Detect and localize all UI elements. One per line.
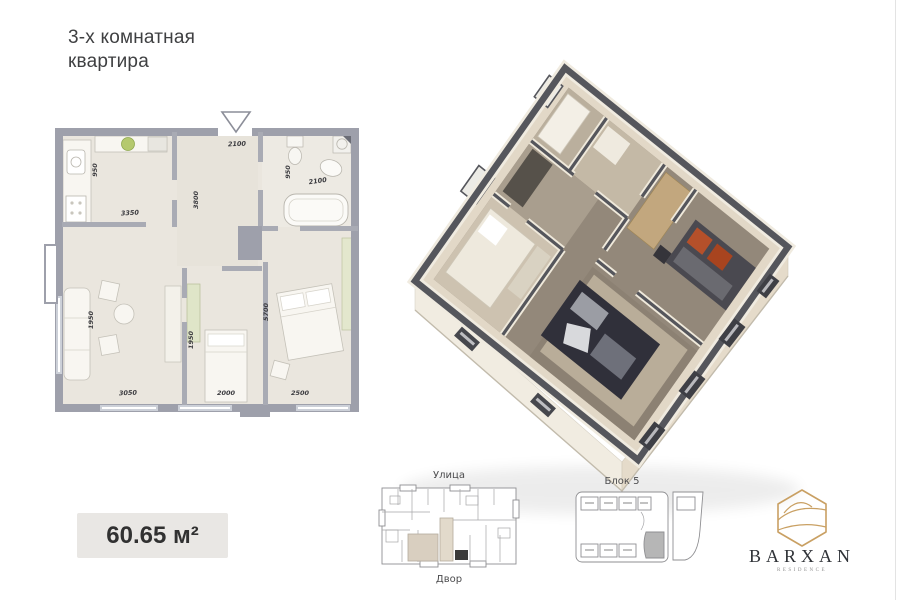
plan3d-body [404, 59, 788, 460]
plans-canvas: 2100 950 3350 3800 950 2100 1950 1950 57… [0, 0, 900, 600]
dim-bedroom2-l: 2000 [217, 389, 236, 397]
wardrobe [342, 238, 352, 330]
shaft-block [45, 245, 57, 303]
dim-living-w: 1950 [87, 310, 95, 329]
brochure-page: 3-х комнатная квартира [0, 0, 900, 600]
dim-bedroom2-w: 1950 [187, 330, 195, 349]
dim-kitchen-w: 950 [91, 163, 99, 177]
page-edge-line [895, 0, 896, 600]
highlighted-unit [644, 532, 664, 558]
block-label: Блок 5 [605, 476, 640, 487]
floor-plan-3d [400, 59, 800, 514]
dim-bedroom1-w: 2500 [291, 389, 310, 397]
dim-hall: 3800 [192, 190, 200, 209]
highlighted-apartment [408, 534, 438, 561]
yard-label: Двор [436, 574, 462, 585]
area-value: 60.65 м² [106, 522, 198, 550]
apartment-marker [455, 550, 468, 560]
pillar [238, 226, 262, 260]
dim-kitchen-l: 3350 [121, 209, 140, 218]
dim-bath-w: 950 [284, 165, 292, 179]
floor-plan-2d: 2100 950 3350 3800 950 2100 1950 1950 57… [45, 112, 359, 417]
logo-brand: BARXAN [712, 546, 892, 567]
dim-bedroom1-l: 5700 [262, 302, 270, 321]
entrance-door [218, 112, 252, 136]
dim-living-l: 3050 [119, 389, 138, 398]
street-label: Улица [433, 470, 465, 481]
area-badge: 60.65 м² [77, 513, 228, 558]
logo-tagline: RESIDENCE [712, 568, 892, 573]
dim-entry: 2100 [228, 140, 247, 149]
plant-icon [122, 138, 135, 151]
